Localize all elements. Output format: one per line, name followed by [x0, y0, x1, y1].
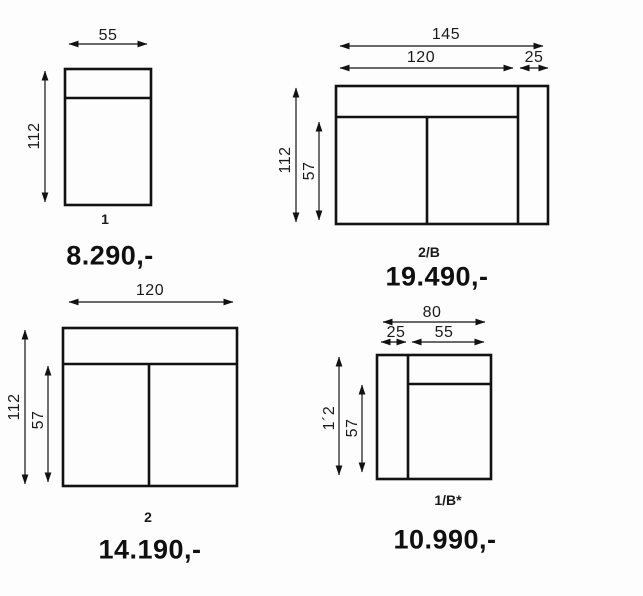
- module-1-width-dim: 55: [99, 27, 118, 45]
- module-1b-drawing: [339, 322, 491, 479]
- module-1b-total-width-dim: 80: [423, 304, 442, 322]
- module-1b-seat-width-dim: 55: [435, 324, 454, 342]
- module-2b-arm-width-dim: 25: [525, 49, 544, 67]
- module-2-seat-height-dim: 57: [30, 411, 48, 430]
- module-2-width-dim: 120: [136, 282, 164, 300]
- module-1b-label: 1/B*: [434, 492, 461, 508]
- module-2-price: 14.190,-: [98, 535, 201, 566]
- diagram-canvas: 55 112 1 8.290,- 145 120 25 112 57 2/B 1…: [0, 0, 643, 596]
- module-2b-seat-height-dim: 57: [301, 162, 319, 181]
- module-2b-drawing: [296, 46, 548, 224]
- module-1b-seat-height-dim: 57: [344, 419, 362, 438]
- module-1b-arm-width-dim: 25: [387, 324, 406, 342]
- module-2b-outline: [336, 86, 548, 224]
- module-2-height-dim: 112: [6, 393, 24, 420]
- module-1-price: 8.290,-: [66, 241, 154, 272]
- module-1b-outline: [377, 355, 491, 479]
- module-1-drawing: [45, 44, 151, 205]
- module-2-drawing: [25, 302, 237, 486]
- module-1-label: 1: [101, 211, 109, 227]
- module-2-label: 2: [144, 509, 152, 525]
- drawing-layer: [0, 0, 643, 596]
- module-2b-height-dim: 112: [277, 146, 295, 173]
- module-2b-total-width-dim: 145: [432, 26, 460, 44]
- module-2b-price: 19.490,-: [385, 262, 488, 293]
- module-1-height-dim: 112: [26, 122, 44, 149]
- module-1b-height-dim: 1´2: [321, 406, 339, 431]
- module-2b-label: 2/B: [418, 244, 440, 260]
- module-1b-price: 10.990,-: [393, 525, 496, 556]
- module-1-outline: [65, 69, 151, 205]
- module-2b-seat-width-dim: 120: [407, 49, 435, 67]
